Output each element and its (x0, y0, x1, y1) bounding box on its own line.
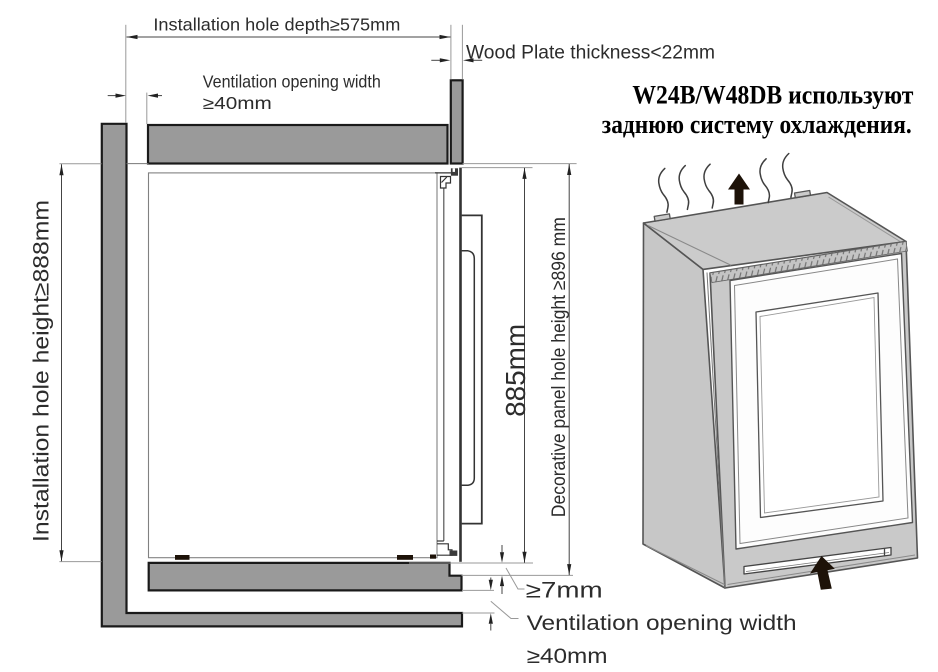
svg-text:885mm: 885mm (500, 324, 531, 417)
svg-text:≥7mm: ≥7mm (526, 578, 603, 603)
svg-text:Ventilation opening width: Ventilation opening width (527, 612, 797, 635)
svg-text:заднюю систему охлаждения.: заднюю систему охлаждения. (602, 110, 912, 139)
svg-text:≥40mm: ≥40mm (203, 93, 272, 113)
svg-text:≥40mm: ≥40mm (527, 645, 608, 668)
svg-text:Wood Plate thickness<22mm: Wood Plate thickness<22mm (466, 42, 715, 64)
svg-text:Ventilation opening width: Ventilation opening width (203, 72, 381, 92)
svg-text:Installation hole depth≥575mm: Installation hole depth≥575mm (153, 15, 400, 35)
svg-text:Decorative panel hole height ≥: Decorative panel hole height ≥896 mm (548, 217, 570, 517)
svg-text:W24B/W48DB используют: W24B/W48DB используют (632, 80, 913, 109)
svg-text:Installation hole height≥888mm: Installation hole height≥888mm (29, 200, 54, 542)
